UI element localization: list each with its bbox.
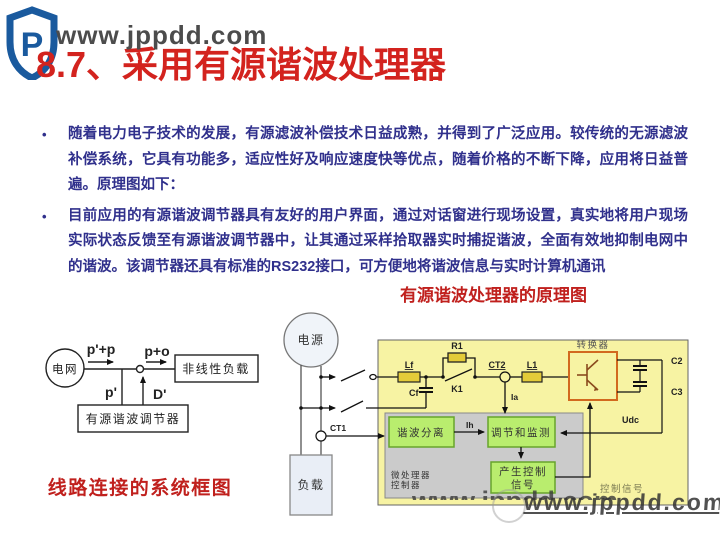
flow-top-label: p'+p	[87, 341, 116, 357]
converter-label: 转换器	[576, 339, 609, 351]
cf-label: Cf	[409, 388, 419, 398]
flow-p-label: p'	[105, 384, 117, 400]
power-source-label: 电源	[297, 333, 324, 347]
converter-box	[569, 352, 617, 400]
ct2-label: CT2	[488, 360, 505, 370]
k1-label: K1	[451, 384, 463, 394]
nonlinear-load-label: 非线性负载	[182, 362, 250, 376]
ct1-sensor	[316, 431, 384, 441]
bullet-marker: •	[38, 204, 68, 281]
regulation-monitor-label: 调节和监测	[491, 426, 551, 439]
r1-resistor	[448, 353, 466, 362]
udc-label: Udc	[622, 415, 639, 425]
grid-source-label: 电网	[52, 363, 78, 376]
c2-label: C2	[671, 356, 683, 366]
junction-node	[137, 366, 144, 373]
flow-right-label: p+o	[144, 343, 169, 359]
r1-label: R1	[451, 341, 463, 351]
bullet-text: 目前应用的有源谐波调节器具有友好的用户界面，通过对话窗进行现场设置，真实地将用户…	[68, 204, 688, 281]
ct1-circle	[316, 431, 326, 441]
breaker-contact	[370, 375, 376, 380]
generate-signal-label-line1: 产生控制	[499, 465, 547, 478]
ct2-circle	[500, 372, 510, 382]
ih-label: Ih	[466, 420, 474, 430]
caption-principle-diagram: 有源谐波处理器的原理图	[400, 281, 587, 306]
mcu-label-line1: 微处理器	[391, 470, 431, 480]
ct1-label: CT1	[330, 423, 346, 433]
c3-label: C3	[671, 387, 683, 397]
regulator-label: 有源谐波调节器	[86, 412, 181, 426]
lf-label: Lf	[405, 360, 414, 370]
watermark-swirl-icon	[492, 489, 526, 523]
harmonic-separation-label: 谐波分离	[397, 426, 445, 439]
slide: { "title": { "text": "8.7、采用有源谐波处理器", "c…	[0, 0, 720, 540]
watermark-top: www.jppdd.com	[56, 20, 267, 51]
flow-d-label: D'	[153, 386, 166, 402]
bullet-item: • 目前应用的有源谐波调节器具有友好的用户界面，通过对话窗进行现场设置，真实地将…	[38, 204, 688, 281]
bullet-text: 随着电力电子技术的发展，有源滤波补偿技术日益成熟，并得到了广泛应用。较传统的无源…	[68, 122, 688, 199]
body-text: • 随着电力电子技术的发展，有源滤波补偿技术日益成熟，并得到了广泛应用。较传统的…	[38, 122, 688, 280]
l1-inductor	[522, 372, 542, 382]
load-label: 负载	[297, 478, 324, 492]
ia-label: Ia	[511, 392, 518, 402]
watermark-bottom-stamp: www.jppdd.com	[523, 489, 720, 515]
bullet-item: • 随着电力电子技术的发展，有源滤波补偿技术日益成熟，并得到了广泛应用。较传统的…	[38, 122, 688, 199]
bullet-marker: •	[38, 122, 68, 199]
lf-inductor	[398, 372, 420, 382]
l1-label: L1	[527, 360, 538, 370]
caption-left-system: 线路连接的系统框图	[48, 476, 233, 499]
